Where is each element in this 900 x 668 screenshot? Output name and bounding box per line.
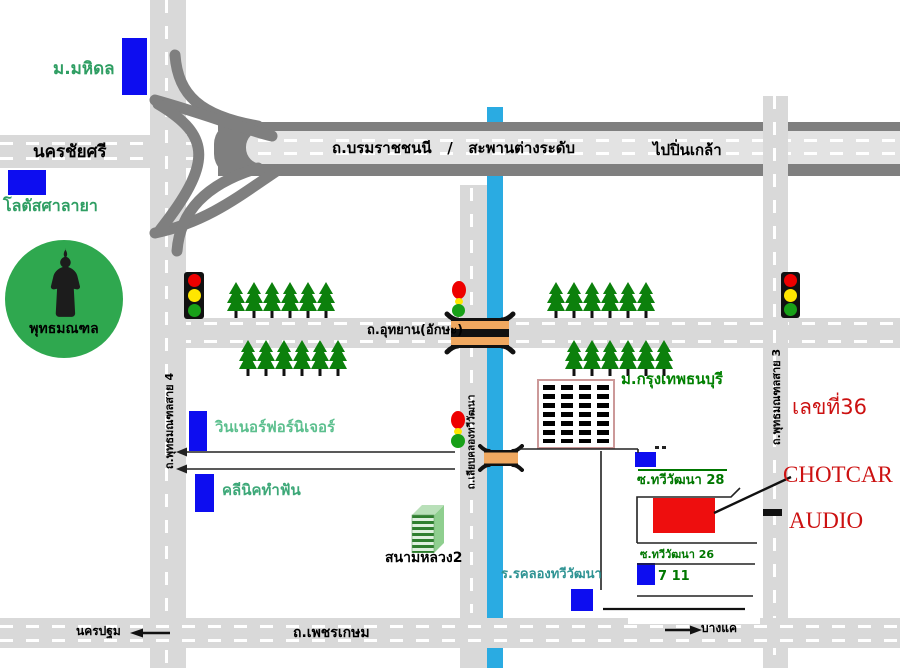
shop-callout-line [714,477,791,513]
entrance-marker [763,509,782,516]
house-number-label: เลขที่36 [792,396,867,419]
winner-furniture-label: วินเนอร์ฟอร์นิเจอร์ [215,419,335,436]
mahidol-label: ม.มหิดล [53,60,115,79]
route-dot [655,446,659,449]
soi28-label: ซ.ทวีวัฒนา 28 [637,474,724,488]
map-canvas: พุทธมณฑล [0,0,900,668]
sai4-road-label: ถ.พุทธมณฑลสาย 4 [160,373,178,469]
dental-clinic-label: คลีนิคทำฟัน [222,482,301,499]
utthayan-road-label: ถ.อุทยาน(อักษะ) [367,324,463,338]
sanam-luang2-label: สนามหลวง2 [385,551,462,566]
left-arrowhead [130,629,143,638]
route-dot [662,446,666,449]
shop-name-line1: CHOTCAR [783,462,893,487]
phetkasem-road-label: ถ.เพชรเกษม [293,626,370,641]
bkk-thonburi-univ-label: ม.กรุงเทพธนบุรี [621,371,723,388]
shop-name-line2: AUDIO [789,508,863,533]
sai3-road-label: ถ.พุทธมณฑลสาย 3 [767,349,785,445]
school-label: ร.รคลองทวีวัฒนา [501,568,602,582]
nakhon-pathom-label: นครปฐม [76,625,121,638]
liap-khlong-road-label: ถ.เลียบคลองทวีวัฒนา [465,395,480,490]
borom-road-label: ถ.บรมราชชนนี / สะพานต่างระดับ [332,140,575,157]
seven-eleven-label: 7 11 [658,570,690,584]
soi28-street-line [637,488,740,543]
bang-khae-label: บางแค [701,622,737,635]
nakhon-chai-si-label: นครชัยศรี [33,143,107,162]
lotus-salaya-label: โลตัสศาลายา [3,197,98,215]
soi26-label: ซ.ทวีวัฒนา 26 [640,549,714,561]
to-pinklao-label: ไปปิ่นเกล้า [653,142,722,159]
